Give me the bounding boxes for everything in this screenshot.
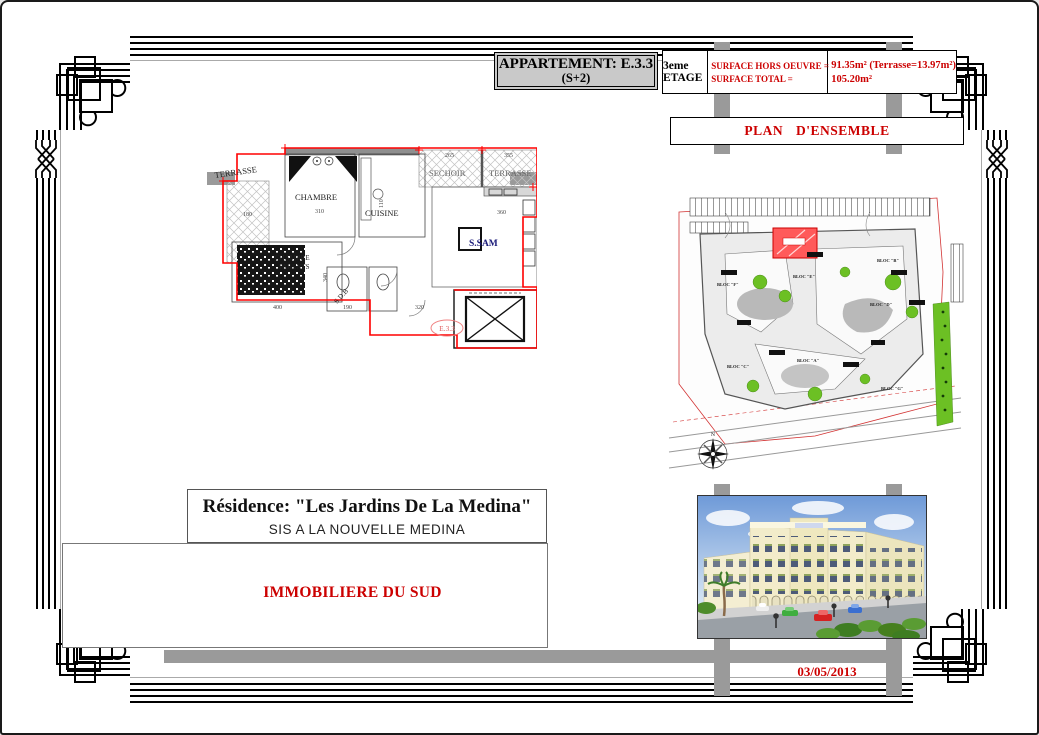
surface-hors-oeuvre-label: SURFACE HORS OEUVRE = <box>711 61 827 71</box>
company-name: IMMOBILIERE DU SUD <box>263 584 442 602</box>
plan-ensemble-title: PLAN D'ENSEMBLE <box>744 123 889 139</box>
surface-total-label: SURFACE TOTAL = <box>711 74 827 84</box>
svg-text:400: 400 <box>273 305 282 311</box>
svg-text:N: N <box>711 432 715 438</box>
svg-text:265: 265 <box>445 153 454 159</box>
svg-text:360: 360 <box>497 210 506 216</box>
residence-name: Résidence: "Les Jardins De La Medina" <box>203 496 532 518</box>
residence-location: SIS A LA NOUVELLE MEDINA <box>269 522 466 537</box>
svg-text:320: 320 <box>415 305 424 311</box>
apartment-subtitle: (S+2) <box>562 72 591 85</box>
apartment-title-box: APPARTEMENT: E.3.3 (S+2) <box>494 52 658 90</box>
frame-corner-knot-tl <box>30 30 130 130</box>
label-parents-2: PARENTS <box>279 263 310 271</box>
svg-text:190: 190 <box>343 305 352 311</box>
building-render-image <box>698 496 926 638</box>
frame-twist-right <box>984 140 1010 178</box>
residence-box: Résidence: "Les Jardins De La Medina" SI… <box>187 489 547 543</box>
label-chambre: CHAMBRE <box>295 192 337 202</box>
site-plan: BLOC "E" BLOC "F" BLOC "B" BLOC "D" BLOC… <box>665 154 965 484</box>
date-label: 03/05/2013 <box>772 664 882 680</box>
label-terrasse-top: TERRASSE <box>489 168 532 178</box>
svg-text:355: 355 <box>504 153 513 159</box>
surface-total-value: 105.20m² <box>831 74 956 85</box>
label-sdb: S.D.B <box>333 287 351 305</box>
label-cuisine: CUISINE <box>365 208 399 218</box>
label-parents-1: CHAMBRE <box>275 254 310 262</box>
plan-ensemble-header: PLAN D'ENSEMBLE <box>670 117 964 145</box>
svg-text:BLOC "D": BLOC "D" <box>870 302 892 307</box>
building-render-box <box>697 495 927 639</box>
svg-text:180: 180 <box>243 212 252 218</box>
floor-label: 3eme ETAGE <box>663 51 708 93</box>
svg-text:110: 110 <box>379 199 385 208</box>
svg-text:BLOC "B": BLOC "B" <box>877 258 899 263</box>
svg-text:BLOC "E": BLOC "E" <box>793 274 815 279</box>
label-ssam: S.SAM <box>469 239 498 249</box>
elevator <box>454 290 537 348</box>
svg-text:BLOC "G": BLOC "G" <box>881 386 903 391</box>
frame-twist-left <box>33 140 59 178</box>
company-box: IMMOBILIERE DU SUD <box>62 543 548 648</box>
frame-corner-knot-br <box>913 609 1013 709</box>
surface-table: 3eme ETAGE SURFACE HORS OEUVRE = SURFACE… <box>662 50 957 94</box>
apartment-title: APPARTEMENT: E.3.3 <box>499 57 653 73</box>
label-sechoir: SECHOIR <box>429 168 466 178</box>
svg-text:BLOC "F": BLOC "F" <box>717 282 739 287</box>
surface-hors-oeuvre-value: 91.35m² (Terrasse=13.97m²) <box>831 60 956 71</box>
grid-band-horizontal <box>164 650 893 663</box>
svg-text:310: 310 <box>315 209 324 215</box>
drawing-sheet: APPARTEMENT: E.3.3 (S+2) 3eme ETAGE SURF… <box>0 0 1039 735</box>
svg-text:BLOC "A": BLOC "A" <box>797 358 819 363</box>
label-terrasse-left: TERRASSE <box>214 164 257 180</box>
svg-text:BLOC "C": BLOC "C" <box>727 364 749 369</box>
unit-label: E.3.3 <box>439 324 455 333</box>
apartment-floor-plan: TERRASSE CHAMBRE SECHOIR TERRASSE CUISIN… <box>207 142 537 352</box>
svg-text:340: 340 <box>323 273 329 282</box>
